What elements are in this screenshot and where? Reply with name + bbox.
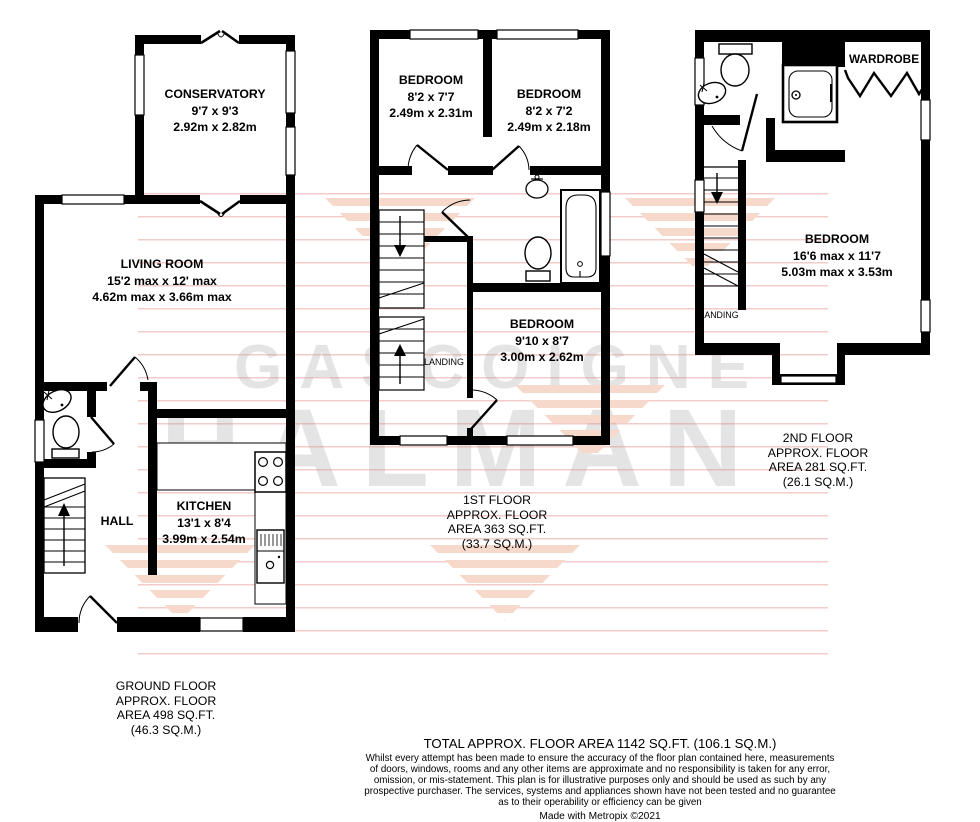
sink-icon <box>526 175 548 198</box>
first-landing-label: LANDING <box>424 357 464 367</box>
washer-icon <box>257 530 284 583</box>
conservatory-door-chevron <box>200 201 240 214</box>
hob-icon <box>255 452 286 492</box>
hall-label: HALL <box>101 513 134 530</box>
wardrobe-label: WARDROBE <box>849 51 919 68</box>
second-landing-label: LANDING <box>699 310 738 320</box>
bedroom2-label: BEDROOM 8'2 x 7'2 2.49m x 2.18m <box>507 86 590 136</box>
second-floor-area-label: 2ND FLOOR APPROX. FLOOR AREA 281 SQ.FT. … <box>768 431 868 489</box>
toilet-icon <box>719 44 752 86</box>
disclaimer-line: as to their operability or efficiency ca… <box>210 798 980 809</box>
living-room-label: LIVING ROOM 15'2 max x 12' max 4.62m max… <box>92 256 231 306</box>
kitchen-label: KITCHEN 13'1 x 8'4 3.99m x 2.54m <box>162 498 245 548</box>
second-floor-plan <box>695 30 930 385</box>
ground-floor-area-label: GROUND FLOOR APPROX. FLOOR AREA 498 SQ.F… <box>116 679 216 737</box>
living-room-door <box>110 357 148 386</box>
bedroom3-door <box>471 390 497 429</box>
toilet-icon <box>52 416 79 458</box>
bedroom3-label: BEDROOM 9'10 x 8'7 3.00m x 2.62m <box>500 316 583 366</box>
wc-door <box>91 417 114 452</box>
shower-icon <box>783 65 837 122</box>
bedroom1-label: BEDROOM 8'2 x 7'7 2.49m x 2.31m <box>389 72 472 122</box>
conservatory-label: CONSERVATORY 9'7 x 9'3 2.92m x 2.82m <box>164 86 265 136</box>
floorplan-page: GASCOIGNE HALMAN <box>0 0 980 822</box>
wardrobe-zigzag <box>845 70 928 96</box>
footer: TOTAL APPROX. FLOOR AREA 1142 SQ.FT. (10… <box>210 736 980 822</box>
toilet-icon <box>525 237 551 281</box>
second-bedroom-label: BEDROOM 16'6 max x 11'7 5.03m max x 3.53… <box>781 231 892 281</box>
front-door <box>79 596 117 623</box>
first-floor-area-label: 1ST FLOOR APPROX. FLOOR AREA 363 SQ.FT. … <box>447 493 547 551</box>
bedroom2-door <box>492 146 529 170</box>
disclaimer-line: prospective purchaser. The services, sys… <box>210 787 980 798</box>
stairs-icon <box>704 167 738 286</box>
stairs-icon <box>379 210 424 390</box>
stairs-icon <box>44 478 85 573</box>
bath-icon <box>561 190 600 283</box>
metropix-credit: Made with Metropix ©2021 <box>210 811 980 822</box>
total-area-text: TOTAL APPROX. FLOOR AREA 1142 SQ.FT. (10… <box>210 736 980 751</box>
bedroom1-door <box>408 145 448 170</box>
bathroom-door <box>442 200 470 239</box>
